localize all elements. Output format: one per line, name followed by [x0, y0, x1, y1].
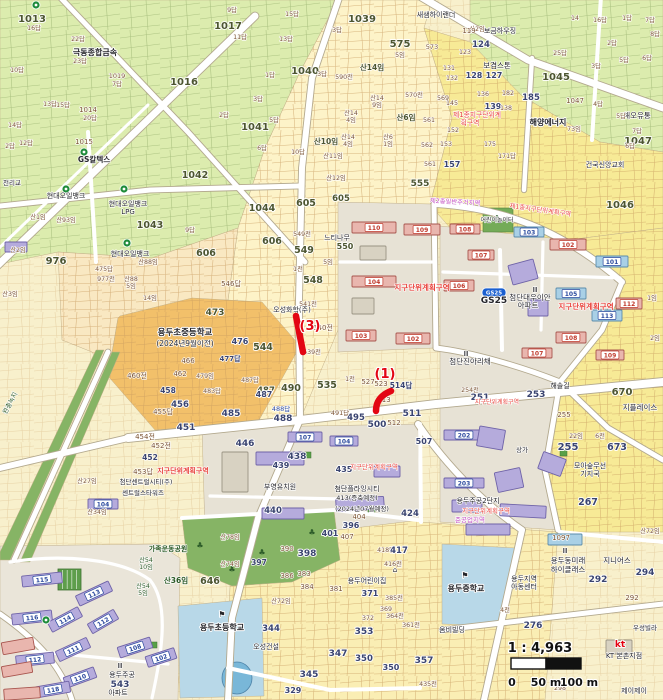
map-label: 산6임	[396, 112, 415, 122]
building-shape	[352, 298, 374, 314]
map-label: 131	[443, 65, 455, 72]
building: 104	[352, 276, 396, 287]
map-label: 산93임	[56, 215, 76, 224]
map-label: 1전	[345, 374, 355, 383]
map-label: 1답	[622, 14, 632, 22]
map-label: 976	[46, 256, 67, 267]
map-label: 152	[447, 127, 459, 134]
map-label: 549	[294, 245, 314, 256]
building-label: 106	[453, 283, 466, 290]
map-label: 398	[298, 549, 317, 559]
map-label: 25답	[553, 49, 567, 57]
map-label: 14답	[8, 121, 22, 129]
map-label: 329	[285, 686, 302, 695]
map-label: 해오유통	[623, 110, 651, 120]
map-label: 산34임	[87, 507, 107, 516]
building-label: 104	[97, 501, 110, 508]
building-label: 107	[299, 434, 312, 441]
building	[352, 298, 374, 314]
map-label: 지구단위계획구역	[157, 466, 209, 475]
map-label: 456	[171, 400, 189, 410]
map-viewport[interactable]: 1101091041031021081031021011071061051121…	[0, 0, 663, 700]
map-label: 옴비빌딩	[439, 625, 465, 634]
map-label: 기지국	[580, 469, 600, 478]
map-label: 473	[206, 308, 225, 318]
map-label: 487답	[241, 376, 259, 384]
map-label: 용두중학교	[448, 583, 485, 593]
map-label: 산3임	[2, 289, 18, 298]
map-label: 6답	[257, 144, 267, 152]
building-label: 107	[531, 350, 544, 357]
map-label: Ⅲ	[533, 286, 538, 294]
scale-tick-label: 50 m	[531, 676, 562, 689]
map-label: 용두어린이집	[348, 576, 387, 585]
map-label: LPG	[121, 208, 135, 216]
map-label: 476	[232, 337, 249, 346]
map-label: Ⅲ	[118, 662, 123, 670]
map-label: 527	[361, 378, 374, 386]
poi-dot	[83, 151, 86, 154]
map-label: 535	[317, 380, 337, 391]
map-label: 127	[486, 71, 503, 80]
map-label: 5답	[619, 56, 629, 64]
map-label: (2024년9월이전)	[156, 338, 213, 348]
building-label: 109	[416, 227, 429, 234]
map-label: 첨단진아리채	[449, 356, 490, 366]
map-label: 부영유치원	[264, 482, 296, 491]
map-label: 산10임	[314, 136, 338, 146]
map-label: 산36임	[164, 575, 188, 585]
map-label: 1019	[109, 72, 126, 80]
map-label: 현대오일뱅크	[111, 249, 150, 258]
map-label: 산14	[344, 108, 358, 117]
map-label: 171답	[498, 152, 516, 160]
map-label: 490	[281, 383, 301, 394]
map-label: 산11임	[323, 151, 343, 160]
map-label: 6답	[642, 54, 652, 62]
map-label: 1044	[249, 203, 276, 214]
map-label: 294	[636, 568, 655, 578]
map-label: 산2임	[10, 245, 26, 254]
map-label: 23답	[73, 57, 87, 65]
map-label: 555	[411, 179, 430, 189]
building-label: 108	[459, 226, 472, 233]
map-label: 350	[355, 654, 373, 664]
map-label: 9임	[372, 101, 382, 109]
map-label: 1016	[170, 77, 198, 88]
map-label: Ⅲ	[563, 547, 568, 555]
map-label: 22답	[71, 35, 85, 43]
map-label: 460전	[127, 371, 147, 380]
building-shape	[466, 524, 510, 535]
map-label: 255	[557, 411, 570, 419]
map-label: 548	[303, 275, 323, 286]
map-label: 1040	[291, 66, 319, 77]
map-label: 546답	[221, 279, 241, 288]
map-label: 상가	[516, 445, 528, 454]
map-label: 지플레이스	[623, 402, 658, 412]
building-label: 104	[368, 279, 381, 286]
map-label: 1전	[293, 264, 303, 273]
map-label: 435전	[419, 679, 437, 688]
map-label: 606	[196, 248, 216, 259]
map-label: 440	[264, 506, 282, 516]
map-label: 439	[273, 461, 290, 470]
map-label: 390	[280, 545, 293, 553]
map-label: 372	[362, 615, 374, 622]
map-label: 오성화학(주)	[273, 305, 311, 314]
map-label: 424	[401, 509, 419, 519]
building: 108	[450, 224, 480, 234]
map-label: 첨단센트럴시티(주)	[120, 477, 173, 486]
map-label: 462	[173, 370, 186, 378]
map-label: 292	[589, 575, 608, 585]
map-label: 175	[484, 141, 496, 148]
map-label: 483답	[203, 387, 221, 395]
map-label: 123	[459, 49, 471, 56]
map-label: 1045	[542, 72, 570, 83]
building: 103	[346, 330, 376, 341]
map-label: 보금하우징	[484, 26, 516, 35]
poi-dot	[126, 242, 129, 245]
building: 203	[444, 478, 484, 488]
building: 105	[556, 288, 586, 299]
map-label: 산72임	[640, 526, 660, 535]
building: 108	[556, 332, 586, 343]
map-label: 2답	[219, 111, 229, 119]
map-label: 지구단위계획구역	[350, 462, 398, 471]
map-label: 지구단위계획구역	[475, 398, 519, 406]
building: 109	[596, 350, 624, 360]
map-label: 267	[578, 497, 598, 508]
map-label: 10답	[10, 66, 24, 74]
map-label: (2024년07월예정)	[335, 504, 389, 513]
map-label: 487	[256, 390, 273, 399]
map-label: 아동센터	[511, 582, 537, 591]
map-label: 해양에너지	[530, 117, 567, 127]
map-label: 산78임	[220, 532, 240, 541]
map-label: GS25	[481, 296, 507, 306]
building-shape	[222, 452, 248, 492]
map-label: 산27임	[77, 476, 97, 485]
map-label: 지구단위계획구역	[394, 282, 449, 292]
poi-station-icon	[32, 1, 40, 9]
building: 104	[330, 436, 358, 446]
building-label: 101	[606, 259, 619, 266]
building-label: 103	[355, 333, 368, 340]
map-label: 185	[522, 93, 540, 103]
poi-station-icon	[120, 185, 128, 193]
map-label: 128	[466, 71, 483, 80]
map-label: 아파트	[518, 300, 539, 310]
map-label: 495	[347, 413, 365, 423]
map-label: 1임	[647, 294, 657, 302]
map-label: 138	[500, 105, 512, 112]
map-label: 488	[274, 414, 293, 424]
map-label: 산54	[139, 555, 153, 564]
map-label: kt	[615, 640, 626, 650]
map-label: 4전	[500, 605, 510, 614]
map-label: 544	[253, 342, 273, 353]
building	[222, 452, 248, 492]
annotation-label-mark-3: (3)	[300, 319, 321, 334]
map-label: 7답	[645, 16, 655, 24]
map-label: 1097	[552, 534, 570, 542]
map-label: 제이제이	[621, 686, 647, 695]
annotation-label-mark-1: (1)	[375, 367, 396, 382]
map-label: 605	[332, 194, 350, 204]
map-label: 보겸스톤	[483, 60, 511, 70]
map-label: 673	[607, 442, 627, 453]
map-label: 511	[403, 409, 422, 419]
map-label: 모아숲무선	[574, 461, 606, 470]
building-label: 104	[338, 438, 351, 445]
map-label: 132	[446, 75, 458, 82]
map-label: 10임	[139, 563, 153, 571]
map-label: 575	[390, 39, 411, 50]
building-label: 115	[35, 576, 48, 584]
scale-ratio: 1 : 4,963	[508, 641, 572, 656]
map-label: 9답	[185, 226, 195, 234]
map-label: 첨단플라잉시티	[334, 484, 379, 493]
map-label: 1014	[79, 106, 97, 114]
building-label: 102	[562, 242, 575, 249]
poi-dot	[123, 188, 126, 191]
map-label: 417	[390, 546, 408, 556]
map-label: 254전	[461, 385, 479, 394]
map-label: 1047	[566, 97, 584, 105]
map-label: ⚑	[218, 610, 225, 619]
map-label: 14임	[143, 294, 157, 302]
building: 112	[616, 298, 642, 309]
map-label: 아파트	[108, 688, 128, 697]
map-label: 488답	[272, 405, 290, 413]
map-label: 산14임	[360, 62, 384, 72]
building-label: 113	[601, 313, 614, 320]
building: 101	[596, 256, 628, 267]
map-label: 산74임	[220, 559, 240, 568]
building: 109	[404, 224, 440, 235]
map-label: 11답	[233, 33, 247, 41]
map-label: 292	[625, 594, 638, 602]
map-label: 산88	[124, 274, 138, 283]
map-label: 20답	[83, 114, 97, 122]
map-label: 396	[343, 521, 360, 530]
map-label: 오성건설	[253, 642, 279, 651]
map-label: 7답	[632, 127, 642, 135]
map-label: 466	[181, 357, 195, 365]
map-label: 381	[329, 585, 342, 593]
map-label: 438	[288, 452, 307, 462]
map-label: 센트럴스타워즈	[122, 488, 164, 497]
map-label: 5답	[269, 116, 279, 124]
map-label: 산12임	[326, 173, 346, 182]
map-label: 561	[424, 161, 436, 168]
map-label: GS칼텍스	[78, 154, 110, 164]
map-label: 276	[524, 621, 543, 631]
poi-station-icon	[123, 239, 131, 247]
map-label: 어린이놀이터	[480, 216, 513, 224]
map-label: 1017	[214, 21, 242, 32]
map-label: 1039	[348, 14, 376, 25]
poi-dot	[45, 619, 48, 622]
map-label: 획구역	[461, 118, 480, 127]
map-label: 하이클래스	[551, 564, 586, 574]
map-label: 446	[236, 439, 255, 449]
map-label: 369	[380, 606, 392, 613]
map-label: 670	[612, 387, 633, 398]
map-label: 4임	[346, 116, 356, 124]
map-label: 485	[222, 409, 241, 419]
map-label: 386	[280, 572, 294, 580]
building-label: 202	[458, 432, 471, 439]
building	[466, 524, 510, 535]
map-label: 344	[262, 624, 280, 634]
map-label: 455답	[153, 407, 173, 416]
map-label: 2답	[5, 142, 15, 150]
map-label: 천리교	[3, 178, 21, 187]
map-label: 2답	[607, 39, 617, 47]
map-label: 6답	[625, 142, 635, 150]
map-label: 13답	[43, 100, 57, 108]
map-label: 383	[297, 570, 310, 578]
map-label: 550	[337, 242, 354, 251]
map-canvas[interactable]: 1101091041031021081031021011071061051121…	[0, 0, 663, 700]
poi-dot	[35, 4, 38, 7]
map-label: 407	[340, 533, 353, 541]
map-label: 지니어스	[603, 555, 631, 565]
map-label: 124	[472, 40, 490, 50]
map-label: 182	[502, 90, 514, 97]
map-label: 512	[387, 419, 400, 427]
map-label: 산88임	[138, 257, 158, 266]
building-shape	[4, 687, 41, 700]
building: 103	[514, 227, 544, 237]
map-label: 지구단위계획구역	[462, 506, 510, 515]
map-label: 용두주공	[109, 671, 135, 679]
map-label: 561	[423, 117, 435, 124]
map-label: 4답	[593, 100, 603, 108]
map-label: 451	[177, 423, 196, 433]
map-label: 646	[200, 576, 220, 587]
building-label: 107	[475, 252, 488, 259]
map-label: 3답	[253, 95, 263, 103]
map-label: 느티나무	[324, 233, 350, 242]
tree-icon: ♣	[196, 541, 203, 550]
scale-segment-black	[546, 658, 581, 669]
map-label: 606	[262, 236, 282, 247]
map-label: 605	[296, 198, 316, 209]
map-label: 새샘하이랜더	[417, 10, 456, 19]
map-label: 1046	[606, 200, 634, 211]
poi-dot	[65, 188, 68, 191]
map-label: ⌂	[393, 566, 397, 574]
map-label: 452전	[151, 441, 171, 450]
map-label: 산72임	[271, 596, 291, 605]
building	[476, 426, 505, 450]
map-label: 977전	[97, 274, 115, 283]
map-label: 용두초등학교	[200, 622, 245, 632]
building-label: 108	[565, 335, 578, 342]
map-label: 15답	[285, 10, 299, 18]
map-label: 153	[440, 141, 452, 148]
map-label: 지구단위계획구역	[558, 301, 613, 311]
map-label: 15답	[56, 101, 70, 109]
building: 107	[522, 348, 552, 358]
map-label: 우성빌라	[633, 623, 657, 632]
map-label: 5임	[138, 589, 148, 597]
map-label: 1043	[137, 220, 163, 231]
map-label: 산14	[370, 93, 384, 102]
map-label: 16답	[27, 24, 41, 32]
building-label: 112	[623, 301, 636, 308]
map-label: 345	[300, 670, 319, 680]
building-label: 203	[458, 480, 471, 487]
building-label: 110	[368, 225, 381, 232]
map-label: 458	[160, 386, 176, 395]
map-label: 1답	[265, 71, 275, 79]
map-label: ⚑	[461, 571, 468, 580]
map-label: 1임	[383, 140, 393, 148]
map-label: 384	[300, 583, 314, 591]
scale-tick-label: 0	[508, 676, 516, 689]
map-label: 13답	[279, 35, 293, 43]
map-label: 16답	[593, 16, 607, 24]
building: 107	[468, 250, 494, 260]
map-label: 73임	[567, 125, 581, 133]
map-label: 157	[444, 160, 461, 169]
map-label: 산54	[136, 581, 150, 590]
map-label: 454전	[135, 432, 155, 441]
building-label: 103	[523, 229, 536, 236]
map-label: 용두지역	[511, 574, 537, 583]
building-label: 116	[25, 614, 38, 622]
map-label: 6전	[595, 431, 605, 440]
building-label: 102	[407, 336, 420, 343]
map-label: 22임	[569, 432, 583, 440]
map-label: 5임	[126, 282, 136, 290]
map-label: 361전	[402, 620, 420, 629]
map-label: 347	[329, 649, 348, 659]
map-label: 477답	[219, 354, 241, 363]
building	[4, 687, 41, 700]
map-label: 용두주공2단지	[456, 496, 499, 505]
map-label: 9답	[227, 6, 237, 14]
tree-icon: ♣	[258, 548, 265, 557]
map-label: 453답	[133, 467, 153, 476]
building: 107	[288, 432, 322, 442]
map-label: 1015	[75, 138, 93, 146]
map-label: 357	[415, 656, 434, 666]
map-label: 549전	[293, 229, 311, 238]
map-label: 5임	[395, 51, 405, 59]
map-label: 7답	[112, 80, 122, 88]
map-label: 3답	[332, 26, 342, 34]
map-label: KT 본촌지점	[606, 651, 642, 660]
map-label: 119	[462, 27, 475, 35]
map-label: 1013	[18, 14, 46, 25]
building: 113	[592, 310, 622, 321]
map-label: 산1임	[30, 212, 46, 221]
map-label: 1041	[241, 122, 269, 133]
map-label: 136	[477, 91, 489, 98]
map-label: 404	[352, 513, 366, 521]
map-label: 573	[426, 43, 438, 51]
scale-segment-white	[511, 658, 546, 669]
building: 110	[352, 222, 396, 233]
map-label: 8답	[650, 30, 660, 38]
map-label: 3답	[317, 70, 327, 78]
